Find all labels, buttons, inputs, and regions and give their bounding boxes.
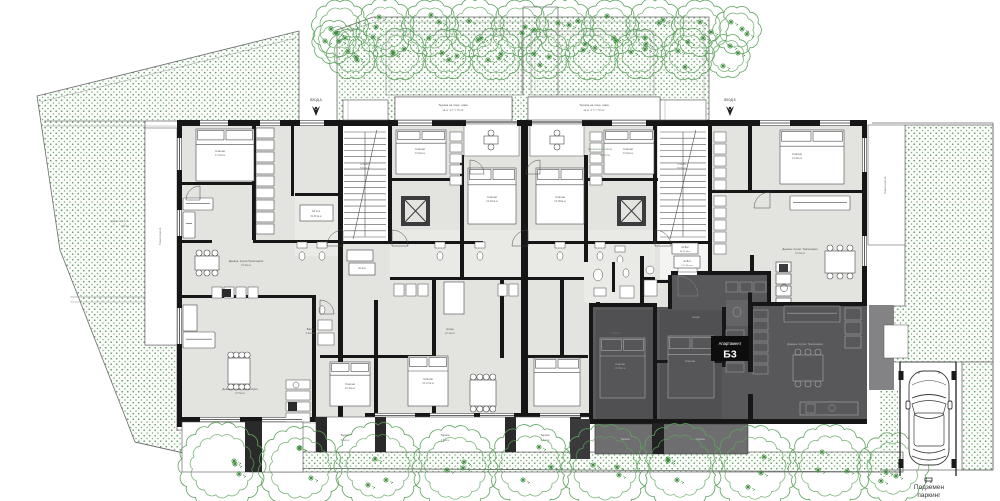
- svg-text:Антре: Антре: [692, 315, 700, 319]
- svg-text:Тераса: Тераса: [540, 433, 550, 437]
- svg-text:Спалня: Спалня: [415, 147, 425, 151]
- svg-text:Стълб.: Стълб.: [677, 162, 686, 166]
- svg-text:≈61 м²: ≈61 м²: [121, 224, 129, 228]
- svg-text:98.26 кв.м: 98.26 кв.м: [680, 251, 691, 253]
- svg-text:13.08кв.м: 13.08кв.м: [554, 199, 566, 203]
- svg-text:Ап Б-2: Ап Б-2: [681, 246, 689, 249]
- svg-text:Тераса: Тераса: [440, 433, 450, 437]
- svg-text:23.4кв.м: 23.4кв.м: [795, 251, 805, 255]
- svg-text:5.4кв.м: 5.4кв.м: [306, 331, 315, 335]
- svg-text:Тераса на покр. нива: Тераса на покр. нива: [438, 103, 468, 107]
- svg-text:13.48кв.м: 13.48кв.м: [614, 367, 625, 370]
- svg-text:Антре: Антре: [446, 327, 454, 331]
- svg-text:240,2 м²: 240,2 м²: [600, 153, 610, 157]
- svg-text:8.97кв.м: 8.97кв.м: [677, 166, 687, 170]
- svg-text:Спалня: Спалня: [487, 195, 497, 199]
- svg-text:Б3: Б3: [723, 349, 737, 361]
- svg-text:Тераса на покр. нива: Тераса на покр. нива: [579, 103, 609, 107]
- svg-text:17.5кв.м: 17.5кв.м: [215, 153, 225, 157]
- svg-text:Тераса към ап.: Тераса към ап.: [158, 227, 162, 245]
- svg-text:Спалня: Спалня: [615, 362, 625, 366]
- svg-text:27.5кв.м: 27.5кв.м: [235, 391, 245, 395]
- svg-text:Дневна, Кухня, Трапезария: Дневна, Кухня, Трапезария: [782, 247, 818, 251]
- svg-text:107.38 кв.м: 107.38 кв.м: [681, 265, 693, 267]
- svg-text:Тераса към ап.: Тераса към ап.: [883, 176, 887, 194]
- svg-text:61.39 кв.м: 61.39 кв.м: [311, 216, 322, 218]
- svg-text:15.4кв.м: 15.4кв.м: [345, 386, 355, 390]
- svg-text:Апартамент: Апартамент: [719, 341, 742, 346]
- svg-text:Спалня: Спалня: [423, 377, 433, 381]
- svg-text:Двор/зелена площ: Двор/зелена площ: [588, 147, 613, 151]
- svg-text:13.92кв.м: 13.92кв.м: [486, 199, 498, 203]
- svg-text:13.9кв.м: 13.9кв.м: [623, 151, 633, 155]
- svg-text:Спалня: Спалня: [215, 149, 225, 153]
- svg-text:15.27кв.м: 15.27кв.м: [422, 381, 434, 385]
- svg-text:Спалня: Спалня: [685, 359, 695, 363]
- svg-text:10.4кв.м: 10.4кв.м: [445, 331, 455, 335]
- svg-text:8.97кв.м: 8.97кв.м: [360, 166, 370, 170]
- svg-text:ВХОД А: ВХОД А: [310, 98, 322, 102]
- svg-text:паркинг: паркинг: [917, 492, 941, 499]
- svg-text:Спалня: Спалня: [623, 147, 633, 151]
- svg-text:Ап А-1: Ап А-1: [312, 209, 320, 213]
- svg-text:Ап Б-3: Ап Б-3: [683, 260, 691, 263]
- svg-text:Тераса: Тераса: [620, 437, 630, 441]
- svg-text:Ап А-2: Ап А-2: [358, 267, 366, 270]
- svg-text:Подземен: Подземен: [914, 484, 945, 491]
- svg-text:Дневна, Кухня, Трапезария: Дневна, Кухня, Трапезария: [222, 387, 258, 391]
- svg-text:Спалня: Спалня: [792, 152, 802, 156]
- svg-text:Двор ап. А-1: Двор ап. А-1: [112, 219, 129, 223]
- svg-text:Стълб.: Стълб.: [360, 162, 369, 166]
- svg-text:24.3кв.м: 24.3кв.м: [241, 263, 251, 267]
- svg-text:Антре: Антре: [612, 327, 620, 331]
- svg-text:8.9кв.м: 8.9кв.м: [612, 331, 621, 335]
- svg-text:14.9кв.м: 14.9кв.м: [792, 156, 802, 160]
- svg-text:Баня: Баня: [307, 327, 314, 331]
- svg-text:Спалня: Спалня: [345, 382, 355, 386]
- svg-text:Дневна, Кухня Трапезария: Дневна, Кухня Трапезария: [229, 259, 264, 263]
- svg-text:Спалня: Спалня: [555, 195, 565, 199]
- svg-text:ВХОД Б: ВХОД Б: [724, 98, 736, 102]
- svg-text:13.9кв.м: 13.9кв.м: [415, 151, 425, 155]
- svg-text:Тераса: Тераса: [695, 437, 705, 441]
- svg-text:кв.м. 4.7-7.78 м²: кв.м. 4.7-7.78 м²: [443, 108, 464, 112]
- svg-text:Дневна, Кухня, Трапезария: Дневна, Кухня, Трапезария: [787, 342, 823, 346]
- svg-text:кв.м. 4.7-7.78 м²: кв.м. 4.7-7.78 м²: [584, 108, 605, 112]
